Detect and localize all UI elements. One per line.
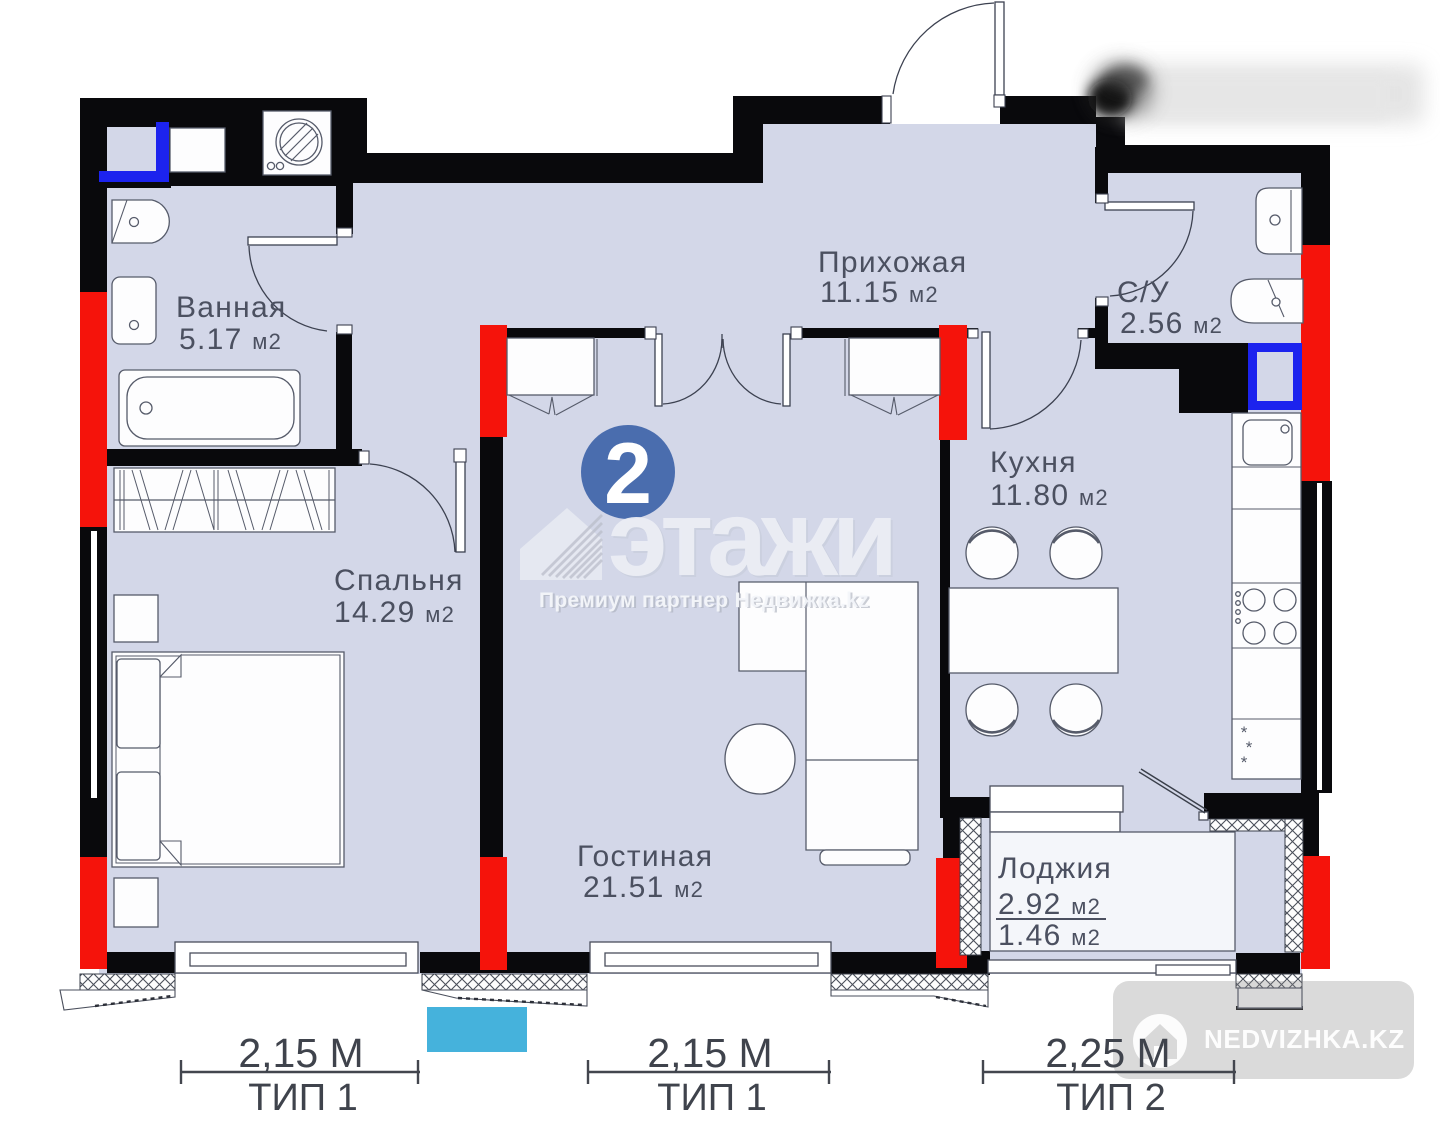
svg-text:Прихожая: Прихожая [818,246,967,279]
svg-text:Ванная: Ванная [176,291,287,324]
svg-text:ТИП 1: ТИП 1 [657,1077,767,1119]
svg-text:Спальня: Спальня [334,564,464,597]
svg-text:NEDVIZHKA.KZ: NEDVIZHKA.KZ [1204,1024,1405,1054]
svg-text:Кухня: Кухня [990,446,1077,479]
svg-text:Гостиная: Гостиная [577,840,713,873]
svg-text:2,15 М: 2,15 М [647,1030,772,1076]
svg-text:ТИП 1: ТИП 1 [248,1077,358,1119]
svg-text:2,25 М: 2,25 М [1045,1030,1170,1076]
svg-text:этажи: этажи [608,477,892,598]
svg-text:2,15 М: 2,15 М [238,1030,363,1076]
svg-text:Премиум партнер Недвижка.kz: Премиум партнер Недвижка.kz [539,589,869,612]
svg-text:С/У: С/У [1117,276,1170,309]
svg-text:*: * [1241,753,1248,772]
svg-text:ТИП 2: ТИП 2 [1056,1077,1166,1119]
svg-text:Лоджия: Лоджия [998,852,1112,885]
